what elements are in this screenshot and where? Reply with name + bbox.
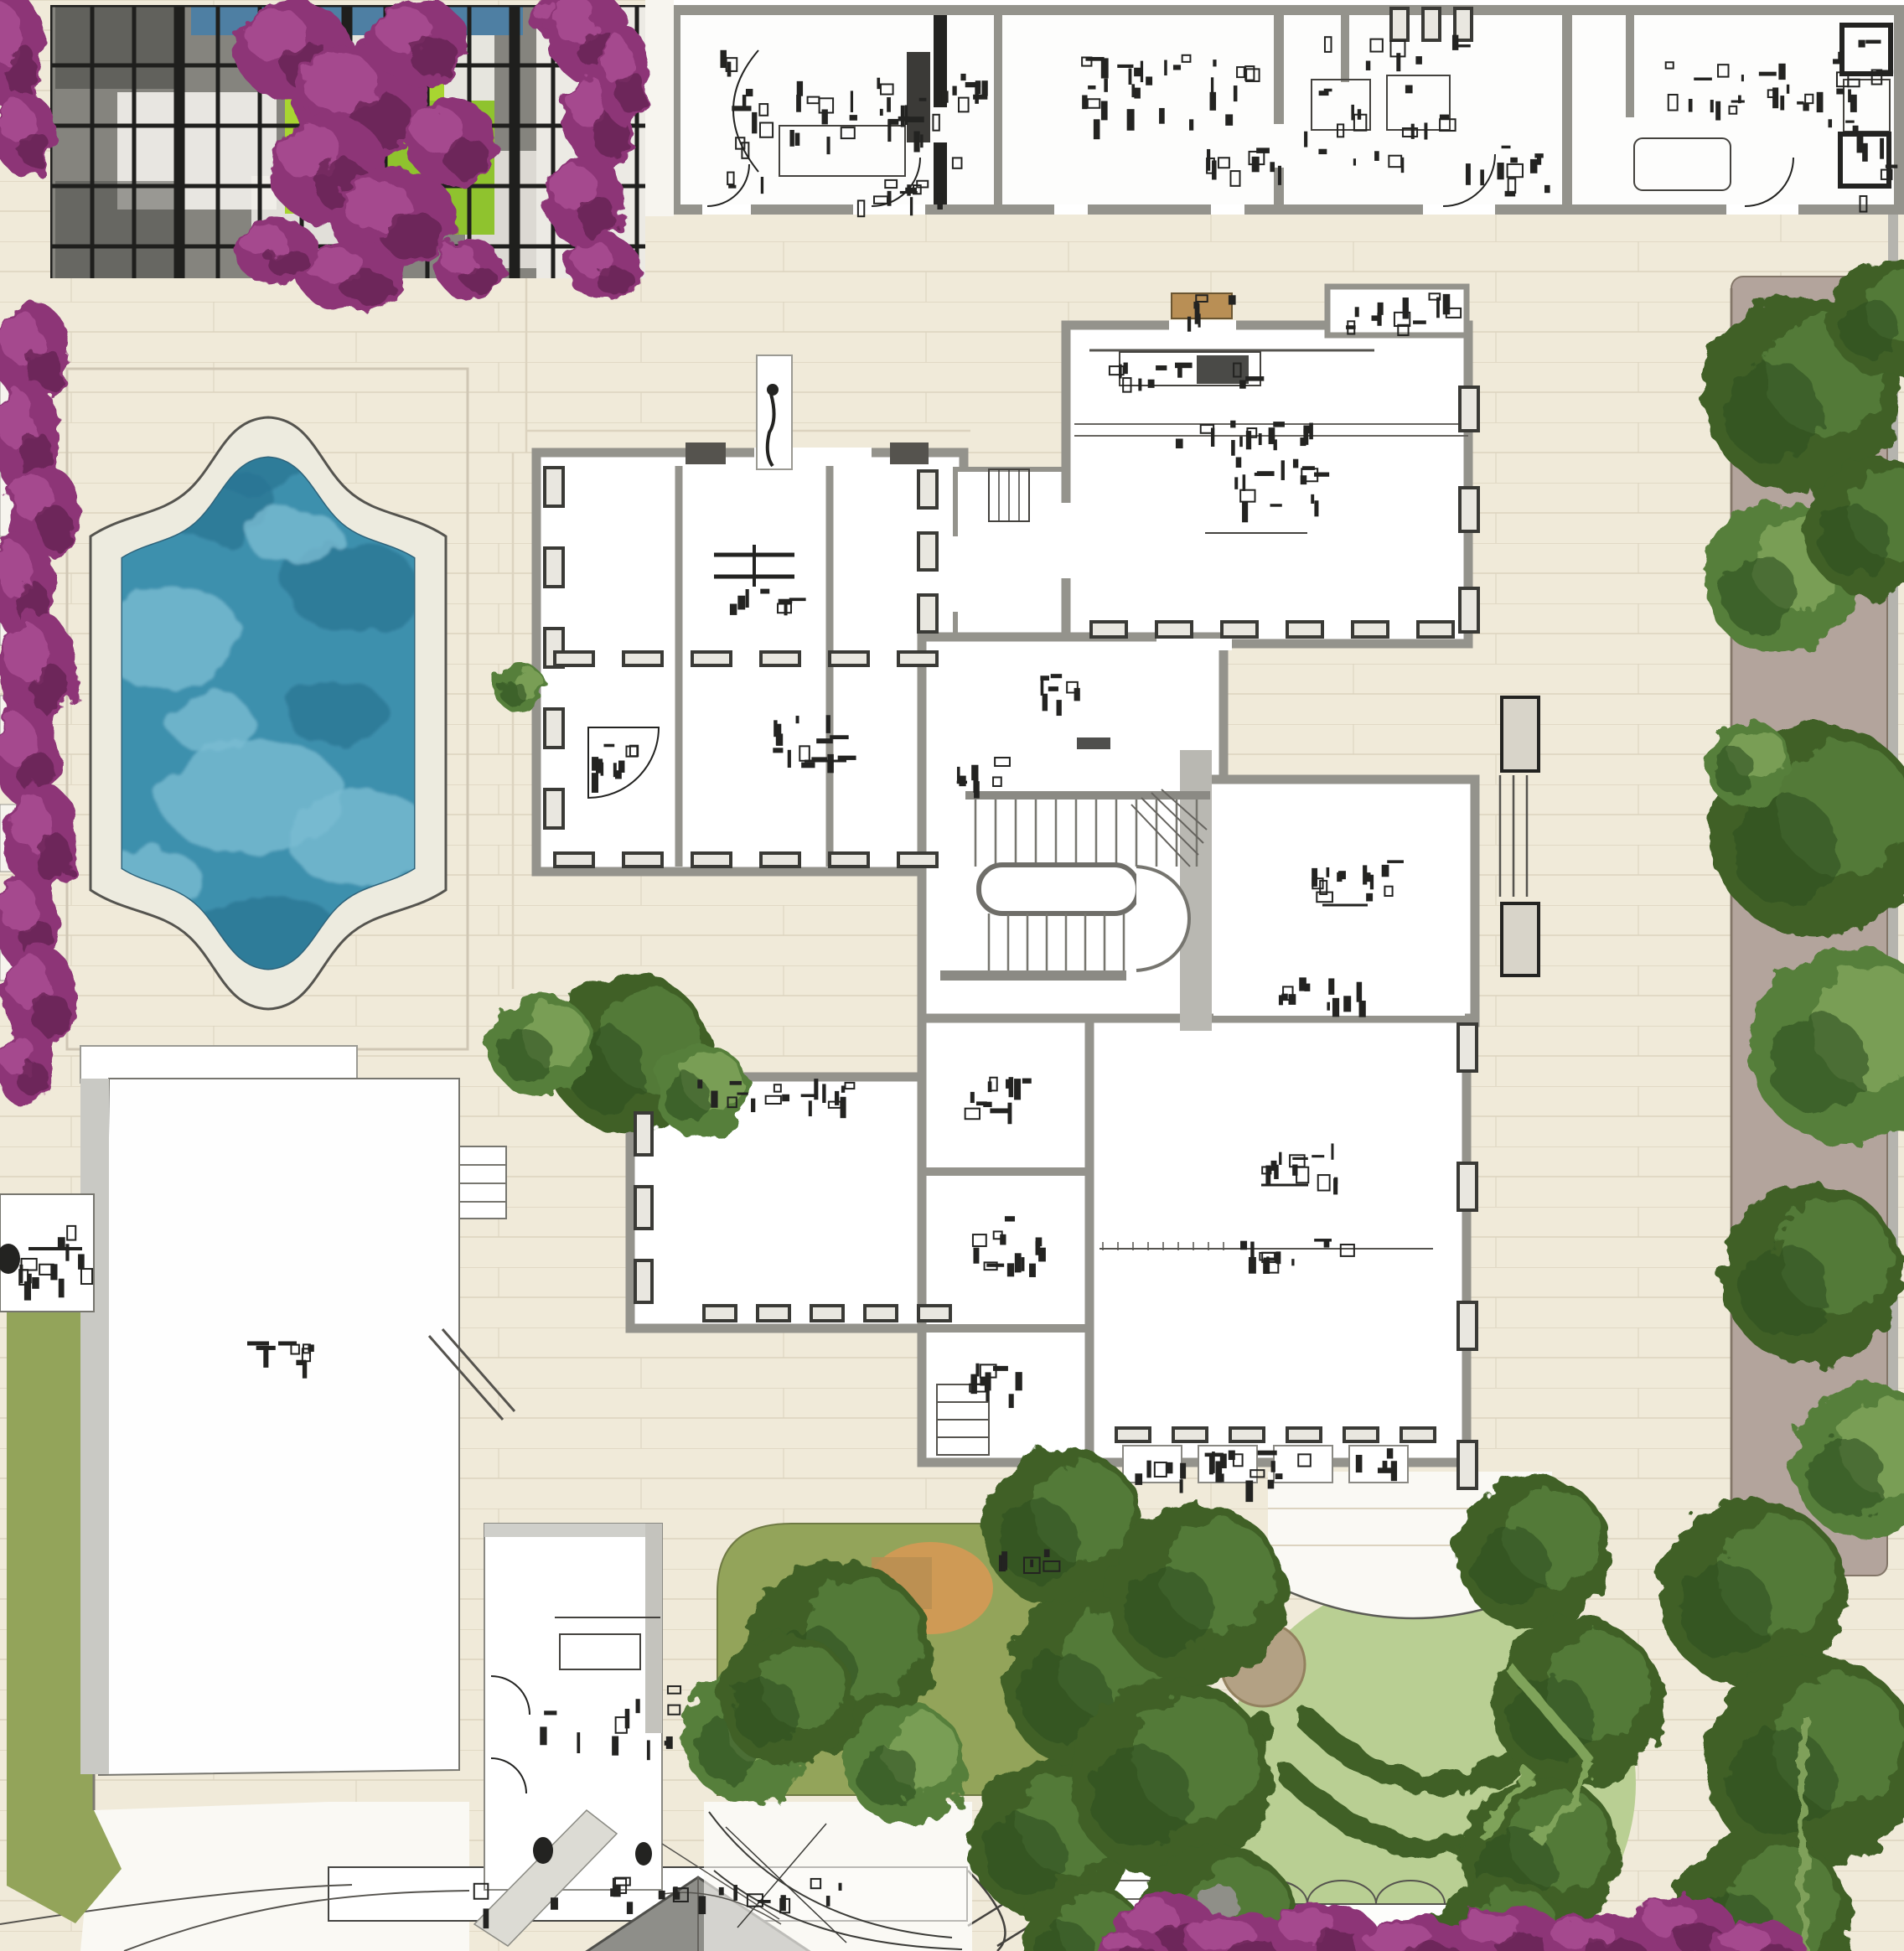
left-outbuilding <box>0 1194 94 1312</box>
door-mat <box>686 442 726 464</box>
north-wing-strip <box>645 0 1904 216</box>
site-plan-canvas <box>0 0 1904 1951</box>
entry-mat <box>1172 293 1232 318</box>
site-plan <box>0 0 1904 1951</box>
door-mat <box>890 442 929 464</box>
southeast-room <box>1089 1018 1467 1462</box>
exterior-stair <box>937 1384 989 1455</box>
flat-roof <box>99 1079 459 1775</box>
